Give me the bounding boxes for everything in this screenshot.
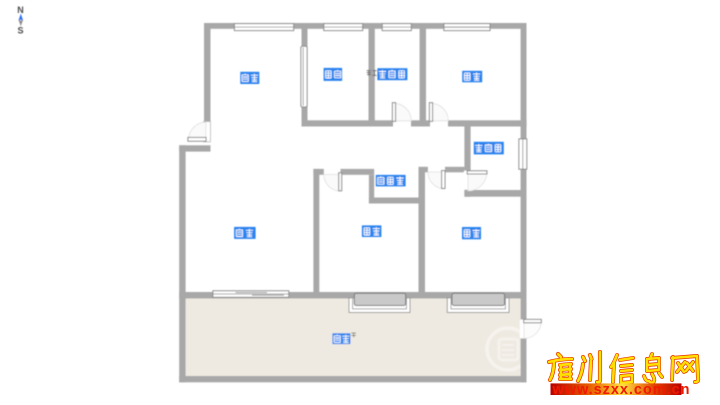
svg-text:S: S xyxy=(17,26,23,36)
svg-text:www.szxx.com.cn: www.szxx.com.cn xyxy=(552,382,690,398)
svg-text:N: N xyxy=(17,5,24,15)
